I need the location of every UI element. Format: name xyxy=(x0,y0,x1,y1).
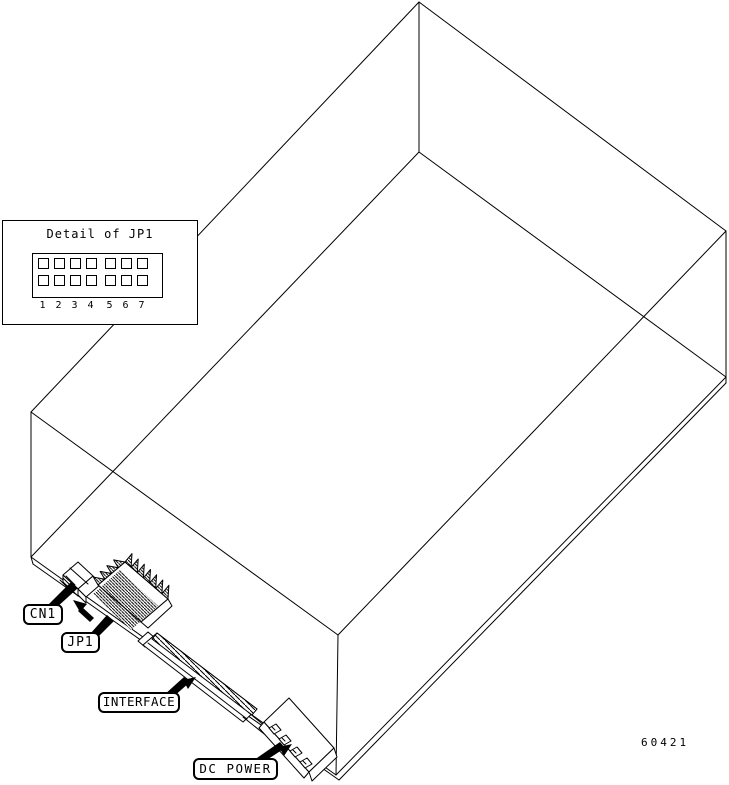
jp1-detail-inset: Detail of JP1 1234567 xyxy=(2,220,198,325)
pin-number: 4 xyxy=(85,300,96,311)
dc-power-label: DC POWER xyxy=(193,758,278,780)
pin-square xyxy=(54,275,65,286)
pin-number: 6 xyxy=(120,300,131,311)
pin-number: 1 xyxy=(37,300,48,311)
pin-square xyxy=(137,275,148,286)
interface-connector xyxy=(138,632,272,737)
pin-square xyxy=(105,275,116,286)
chassis-wireframe xyxy=(31,2,726,780)
pin-row xyxy=(38,258,162,269)
interface-label: INTERFACE xyxy=(98,692,180,713)
pin-number: 5 xyxy=(104,300,115,311)
pin-square xyxy=(121,258,132,269)
pin-number: 2 xyxy=(53,300,64,311)
pin-square xyxy=(38,258,49,269)
pin-square xyxy=(54,258,65,269)
pin-grid xyxy=(32,253,163,298)
pin-square xyxy=(105,258,116,269)
pin-square xyxy=(86,258,97,269)
pin-square xyxy=(70,258,81,269)
pin-square xyxy=(86,275,97,286)
figure-number: 60421 xyxy=(641,736,689,749)
pin-square xyxy=(137,258,148,269)
inset-title: Detail of JP1 xyxy=(3,227,197,241)
pin-square xyxy=(70,275,81,286)
pin-row xyxy=(38,275,162,286)
jp1-arrow-tail xyxy=(78,607,94,622)
leader-lines xyxy=(48,582,292,763)
jp1-label: JP1 xyxy=(61,632,100,653)
device-line-art xyxy=(0,0,729,785)
pin-square xyxy=(38,275,49,286)
pin-numbers: 1234567 xyxy=(37,300,147,311)
cn1-label: CN1 xyxy=(23,604,63,625)
pin-square xyxy=(121,275,132,286)
pin-number: 7 xyxy=(136,300,147,311)
pin-number: 3 xyxy=(69,300,80,311)
hardware-diagram: Detail of JP1 1234567 CN1 JP1 INTERFACE … xyxy=(0,0,729,785)
